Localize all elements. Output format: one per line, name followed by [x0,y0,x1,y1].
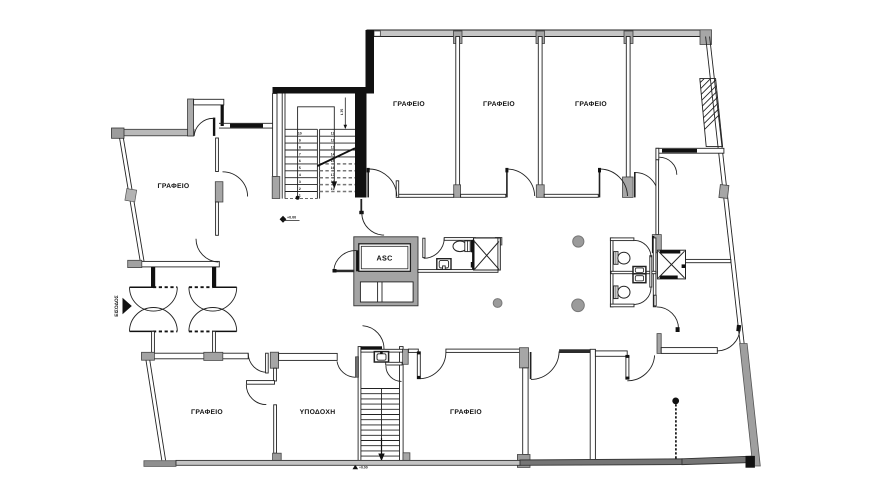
svg-text:19: 19 [331,187,335,191]
svg-text:11: 11 [331,132,335,136]
svg-text:4: 4 [299,173,301,177]
svg-text:15: 15 [331,159,335,163]
svg-text:ΓΡΑΦΕΙΟ: ΓΡΑΦΕΙΟ [575,101,607,108]
svg-text:+0.00: +0.00 [287,215,296,219]
svg-text:2: 2 [299,187,301,191]
svg-text:9: 9 [299,139,301,143]
svg-text:8: 8 [299,145,301,149]
svg-text:ΕΙΣΟΔΟΣ: ΕΙΣΟΔΟΣ [114,295,120,316]
svg-text:ΓΡΑΦΕΙΟ: ΓΡΑΦΕΙΟ [191,409,223,416]
svg-text:ΓΡΑΦΕΙΟ: ΓΡΑΦΕΙΟ [158,183,190,190]
svg-text:ΓΡΑΦΕΙΟ: ΓΡΑΦΕΙΟ [450,409,482,416]
svg-text:18: 18 [331,180,335,184]
svg-text:16: 16 [331,166,335,170]
svg-text:ΓΡΑΦΕΙΟ: ΓΡΑΦΕΙΟ [393,101,425,108]
svg-text:ASC: ASC [377,253,393,262]
svg-text:ΥΠΟΔΟΧΗ: ΥΠΟΔΟΧΗ [300,409,336,416]
svg-text:1: 1 [299,194,301,198]
svg-text:12: 12 [331,139,335,143]
svg-text:5: 5 [299,166,301,170]
svg-text:+0.00: +0.00 [359,466,368,470]
svg-text:13: 13 [331,145,335,149]
svg-text:ΓΡΑΦΕΙΟ: ΓΡΑΦΕΙΟ [483,101,515,108]
svg-text:7: 7 [299,152,301,156]
svg-text:14: 14 [331,152,335,156]
svg-text:6: 6 [299,159,301,163]
svg-text:3: 3 [299,180,301,184]
svg-text:10: 10 [298,132,302,136]
svg-text:1.75: 1.75 [340,109,344,116]
svg-text:17: 17 [331,173,335,177]
